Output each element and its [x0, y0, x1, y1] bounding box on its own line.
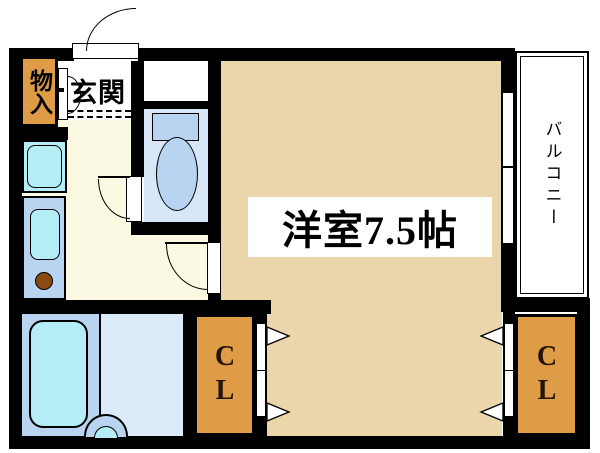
- folding-door-arrow: [481, 403, 503, 421]
- folding-door-arrow: [267, 403, 289, 421]
- folding-door-arrow: [267, 327, 289, 345]
- folding-door-arrows-overlay: [0, 0, 600, 453]
- floorplan-canvas: バルコニー 物入 玄関 洋室7.5帖: [0, 0, 600, 453]
- folding-door-arrow: [481, 327, 503, 345]
